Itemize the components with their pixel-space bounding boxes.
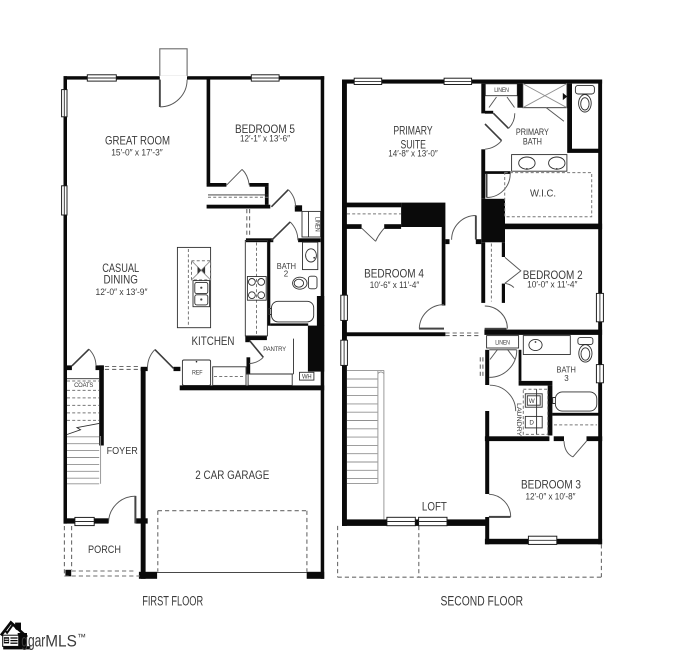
- svg-text:COATS: COATS: [74, 382, 93, 389]
- svg-text:2: 2: [284, 269, 289, 278]
- svg-text:14′-8″ x 13′-0″: 14′-8″ x 13′-0″: [388, 148, 438, 158]
- svg-text:REF: REF: [192, 370, 203, 377]
- svg-text:12′-0″ x 10′-8″: 12′-0″ x 10′-8″: [526, 492, 576, 502]
- svg-text:LINEN: LINEN: [314, 217, 321, 232]
- svg-text:LINEN: LINEN: [494, 87, 509, 94]
- svg-text:2 CAR GARAGE: 2 CAR GARAGE: [195, 468, 269, 482]
- svg-text:3: 3: [564, 374, 569, 383]
- svg-text:LINEN: LINEN: [495, 339, 510, 346]
- svg-text:™: ™: [77, 632, 86, 642]
- svg-text:LOFT: LOFT: [422, 500, 448, 514]
- svg-text:GREAT ROOM: GREAT ROOM: [105, 133, 170, 147]
- svg-text:SECOND FLOOR: SECOND FLOOR: [441, 594, 524, 609]
- svg-text:10′-6″ x 11′-4″: 10′-6″ x 11′-4″: [370, 280, 420, 290]
- svg-text:W: W: [529, 398, 535, 405]
- svg-text:PORCH: PORCH: [88, 544, 121, 556]
- svg-text:PRIMARY: PRIMARY: [516, 127, 549, 137]
- svg-text:FOYER: FOYER: [107, 446, 138, 457]
- svg-text:FIRST FLOOR: FIRST FLOOR: [142, 593, 203, 608]
- svg-text:ggar: ggar: [21, 631, 45, 651]
- svg-text:LAUNDRY: LAUNDRY: [515, 403, 522, 437]
- svg-text:WH: WH: [302, 373, 312, 380]
- svg-text:PANTRY: PANTRY: [263, 346, 287, 353]
- svg-text:BATH: BATH: [523, 137, 542, 147]
- svg-text:15′-0″ x 17′-3″: 15′-0″ x 17′-3″: [111, 147, 163, 157]
- svg-text:D: D: [529, 420, 534, 427]
- svg-text:DINING: DINING: [103, 273, 138, 287]
- svg-text:BEDROOM 3: BEDROOM 3: [521, 477, 581, 491]
- svg-text:KITCHEN: KITCHEN: [192, 334, 235, 348]
- svg-text:MLS: MLS: [45, 633, 77, 651]
- svg-text:12′-1″ x 13′-6″: 12′-1″ x 13′-6″: [240, 134, 290, 144]
- svg-text:W.I.C.: W.I.C.: [530, 189, 556, 200]
- svg-text:BATH: BATH: [557, 365, 576, 374]
- svg-text:10′-0″ x 11′-4″: 10′-0″ x 11′-4″: [527, 280, 577, 290]
- svg-text:BEDROOM 4: BEDROOM 4: [364, 266, 424, 280]
- svg-text:12′-0″ x 13′-9″: 12′-0″ x 13′-9″: [96, 287, 148, 297]
- svg-text:PRIMARY: PRIMARY: [393, 123, 432, 137]
